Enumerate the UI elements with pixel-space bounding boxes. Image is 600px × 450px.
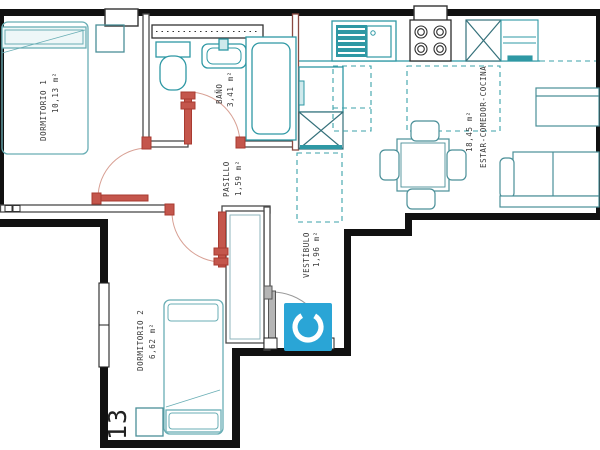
bed2-footband-inner <box>169 413 218 429</box>
door-hinge <box>264 286 272 299</box>
room-area-estar: 18,45 m² <box>465 111 474 152</box>
hatch-square <box>5 206 12 212</box>
chimney-box <box>414 6 447 21</box>
room-area-dormitorio1: 10,13 m² <box>51 72 60 113</box>
door-arc <box>98 148 148 198</box>
sofa-back <box>500 196 599 207</box>
logo-square <box>284 303 332 351</box>
room-area-bano: 3,41 m² <box>226 71 235 107</box>
wall-vestibulo-east <box>344 230 351 356</box>
wall-step-left <box>0 219 108 227</box>
door-hinge <box>214 248 228 255</box>
door-leaf <box>98 195 148 201</box>
dining-table-inner <box>401 143 445 187</box>
room-label-dormitorio1: DORMITORIO 1 <box>39 80 48 141</box>
logo-c-icon <box>284 303 332 351</box>
fridge <box>466 20 501 61</box>
door-jamb <box>92 193 101 204</box>
bathtub-inner <box>252 43 290 134</box>
bed2-pillow <box>168 304 218 321</box>
sofa-armrest <box>500 158 514 198</box>
kitchen-cabinet-right <box>501 20 538 61</box>
kitchen <box>299 20 596 149</box>
room-label-dormitorio2: DORMITORIO 2 <box>136 310 145 371</box>
dorm2-furniture <box>136 300 223 436</box>
door-jamb <box>236 137 245 148</box>
living-furniture <box>380 88 599 209</box>
door-hinge <box>181 92 195 99</box>
chair-bottom <box>407 189 435 209</box>
door-hinge <box>214 258 228 265</box>
room-area-pasillo: 1,59 m² <box>234 160 243 196</box>
wall-top <box>0 9 600 16</box>
door-jamb <box>142 137 151 149</box>
chair-left <box>380 150 399 180</box>
wardrobe <box>226 211 264 343</box>
door-hinge <box>181 102 195 109</box>
room-label-bano: BAÑO <box>215 84 224 104</box>
toilet-tank <box>156 42 190 57</box>
cabinet-handle <box>299 81 304 105</box>
nightstand-1 <box>96 25 124 52</box>
door-dorm1 <box>92 137 151 204</box>
bathroom-fixtures <box>152 25 296 140</box>
chair-top <box>411 121 439 141</box>
room-label-vestibulo: VESTÍBULO <box>302 232 311 278</box>
hatch-square <box>13 206 20 212</box>
wall-hatch-squares <box>5 206 20 212</box>
dorm1-furniture <box>2 22 124 154</box>
wall-bano-south-right <box>238 141 294 147</box>
window-dorm2 <box>99 283 109 367</box>
nightstand-2 <box>136 408 163 436</box>
room-area-dormitorio2: 6,62 m² <box>148 323 157 359</box>
door-bano <box>181 92 245 148</box>
stove <box>410 20 451 61</box>
vent-box <box>105 9 138 26</box>
radiator <box>152 25 263 38</box>
wall-step-vertical <box>232 352 240 448</box>
kitchen-sink-basin <box>367 26 391 57</box>
room-label-estar: ESTAR-COMEDOR-COCINA <box>479 66 488 168</box>
room-area-vestibulo: 1,96 m² <box>312 231 321 267</box>
door-jamb <box>264 338 277 349</box>
wall-dorm2-south <box>100 440 240 448</box>
door-jamb <box>165 204 174 215</box>
floor-plan-drawing: DORMITORIO 1 10,13 m² BAÑO 3,41 m² PASIL… <box>0 0 600 450</box>
toilet-bowl <box>160 56 186 90</box>
door-dorm2 <box>165 204 228 267</box>
wall-bano-south-left <box>146 141 188 147</box>
wall-dorm1-east <box>143 14 149 148</box>
chair-right <box>447 150 466 180</box>
wall-estar-step <box>344 229 412 236</box>
room-label-pasillo: PASILLO <box>222 161 231 197</box>
wall-estar-south <box>405 213 600 220</box>
floor-plan-page: DORMITORIO 1 10,13 m² BAÑO 3,41 m² PASIL… <box>0 0 600 450</box>
sideboard <box>536 88 599 126</box>
overhead-vestibulo <box>297 153 342 222</box>
bath-sink-tap <box>219 39 228 50</box>
wall-dorm1-south <box>1 205 171 212</box>
tall-cabinet <box>299 67 343 112</box>
sofa-seat <box>513 152 599 196</box>
plot-number: 13 <box>103 408 132 440</box>
